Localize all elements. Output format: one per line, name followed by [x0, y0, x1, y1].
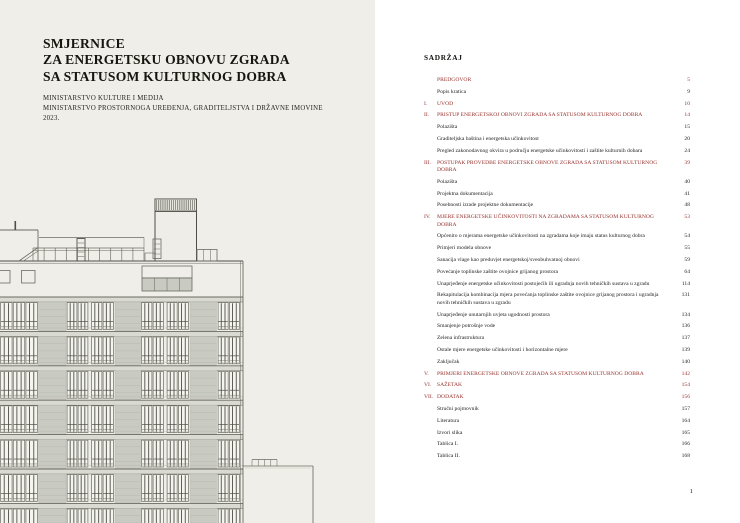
document-spread: SMJERNICE ZA ENERGETSKU OBNOVU ZGRADA SA… [0, 0, 740, 523]
toc-entry-label: PREDGOVOR [437, 77, 662, 84]
toc-entry-page: 48 [684, 202, 690, 209]
toc-roman-numeral: III. [424, 160, 437, 167]
toc-roman-numeral: I. [424, 101, 437, 108]
toc-entry-label: Stručni pojmovnik [437, 406, 662, 413]
toc-row: VII.DODATAK156 [424, 394, 690, 401]
toc-entry-page: 165 [682, 430, 690, 437]
toc-entry-page: 166 [682, 441, 690, 448]
toc-entry-page: 114 [682, 281, 690, 288]
toc-row: Polazišta40 [424, 179, 690, 186]
toc-entry-page: 136 [682, 323, 690, 330]
toc-roman-numeral: VII. [424, 394, 437, 401]
toc-heading: SADRŽAJ [424, 53, 690, 62]
toc-row: Posebnosti izrade projektne dokumentacij… [424, 202, 690, 209]
toc-entry-label: Popis kratica [437, 89, 662, 96]
toc-entry-page: 15 [684, 124, 690, 131]
cover-title: SMJERNICE ZA ENERGETSKU OBNOVU ZGRADA SA… [43, 36, 323, 85]
toc-entry-page: 139 [682, 347, 690, 354]
toc-entry-label: PRIMJERI ENERGETSKE OBNOVE ZGRADA SA STA… [437, 371, 662, 378]
toc-entry-page: 10 [684, 101, 690, 108]
toc-entry-label: PRISTUP ENERGETSKOJ OBNOVI ZGRADA SA STA… [437, 112, 662, 119]
toc-roman-numeral: II. [424, 112, 437, 119]
toc-entry-page: 140 [682, 359, 690, 366]
toc-page: SADRŽAJ PREDGOVOR5Popis kratica9I.UVOD10… [375, 0, 740, 523]
toc-entry-page: 64 [684, 269, 690, 276]
toc-entry-label: Rekapitulacija kombinacija mjera povećan… [437, 292, 662, 307]
toc-entry-label: Pregled zakonodavnog okvira u području e… [437, 148, 662, 155]
toc-entry-page: 156 [682, 394, 690, 401]
toc-entry-page: 41 [684, 191, 690, 198]
cover-title-line: SMJERNICE [43, 36, 323, 52]
toc-entry-page: 9 [687, 89, 690, 96]
cover-subtitle-line: 2023. [43, 114, 323, 124]
toc-entry-page: 14 [684, 112, 690, 119]
toc-entry-page: 55 [684, 245, 690, 252]
toc-entry-label: Ostale mjere energetske učinkovitosti i … [437, 347, 662, 354]
toc-entry-label: Unaprjeđenje unutarnjih uvjeta ugodnosti… [437, 312, 662, 319]
toc-row: IV.MJERE ENERGETSKE UČINKOVITOSTI NA ZGR… [424, 214, 690, 229]
toc-entry-label: Povećanje toplinske zaštite ovojnice gri… [437, 269, 662, 276]
toc-entry-page: 154 [682, 382, 690, 389]
toc-row: Zelena infrastruktura137 [424, 335, 690, 342]
toc-row: Primjeri modela obnove55 [424, 245, 690, 252]
toc-row: Sanacija vlage kao preduvjet energetskoj… [424, 257, 690, 264]
toc-entry-label: Literatura [437, 418, 662, 425]
toc-entry-label: Smanjenje potrošnje vode [437, 323, 662, 330]
toc-row: Popis kratica9 [424, 89, 690, 96]
toc-entry-page: 134 [682, 312, 690, 319]
toc-entry-label: Izvori slika [437, 430, 662, 437]
cover-subtitle: MINISTARSTVO KULTURE I MEDIJA MINISTARST… [43, 94, 323, 123]
toc-entry-label: Tablica II. [437, 453, 662, 460]
cover-subtitle-line: MINISTARSTVO KULTURE I MEDIJA [43, 94, 323, 104]
toc-entry-page: 54 [684, 233, 690, 240]
toc-row: I.UVOD10 [424, 101, 690, 108]
cover-subtitle-line: MINISTARSTVO PROSTORNOGA UREĐENJA, GRADI… [43, 104, 323, 114]
toc-row: Polazišta15 [424, 124, 690, 131]
toc-row: Izvori slika165 [424, 430, 690, 437]
toc-entry-label: Unaprjeđenje energetske učinkovitosti po… [437, 281, 662, 288]
toc-row: Općenito o mjerama energetske učinkovito… [424, 233, 690, 240]
toc-row: VI.SAŽETAK154 [424, 382, 690, 389]
toc-entry-page: 157 [682, 406, 690, 413]
toc-entry-label: UVOD [437, 101, 662, 108]
toc-row: Projektna dokumentacija41 [424, 191, 690, 198]
toc-roman-numeral: V. [424, 371, 437, 378]
toc-row: PREDGOVOR5 [424, 77, 690, 84]
toc-entry-label: Polazišta [437, 124, 662, 131]
toc-row: Tablica I.166 [424, 441, 690, 448]
toc-row: II.PRISTUP ENERGETSKOJ OBNOVI ZGRADA SA … [424, 112, 690, 119]
toc-entry-page: 20 [684, 136, 690, 143]
toc-entry-page: 137 [682, 335, 690, 342]
toc-row: Tablica II.168 [424, 453, 690, 460]
toc-entry-label: MJERE ENERGETSKE UČINKOVITOSTI NA ZGRADA… [437, 214, 662, 229]
toc-entry-page: 131 [682, 292, 690, 299]
toc-entry-page: 39 [684, 160, 690, 167]
toc-row: V.PRIMJERI ENERGETSKE OBNOVE ZGRADA SA S… [424, 371, 690, 378]
toc-row: Stručni pojmovnik157 [424, 406, 690, 413]
toc-row: Zaključak140 [424, 359, 690, 366]
toc-entry-label: Zaključak [437, 359, 662, 366]
toc-entry-label: DODATAK [437, 394, 662, 401]
cover-page: SMJERNICE ZA ENERGETSKU OBNOVU ZGRADA SA… [0, 0, 375, 523]
toc-entry-page: 142 [682, 371, 690, 378]
toc-entry-page: 5 [687, 77, 690, 84]
toc-entry-label: Projektna dokumentacija [437, 191, 662, 198]
toc-rows: PREDGOVOR5Popis kratica9I.UVOD10II.PRIST… [424, 77, 690, 461]
toc-entry-label: Zelena infrastruktura [437, 335, 662, 342]
toc-row: Ostale mjere energetske učinkovitosti i … [424, 347, 690, 354]
toc-entry-page: 164 [682, 418, 690, 425]
toc-roman-numeral: IV. [424, 214, 437, 221]
toc-entry-page: 59 [684, 257, 690, 264]
cover-title-line: ZA ENERGETSKU OBNOVU ZGRADA [43, 52, 323, 68]
toc-row: Literatura164 [424, 418, 690, 425]
toc-entry-label: Graditeljska baština i energetska učinko… [437, 136, 662, 143]
cover-text-block: SMJERNICE ZA ENERGETSKU OBNOVU ZGRADA SA… [43, 36, 323, 124]
toc-entry-label: Posebnosti izrade projektne dokumentacij… [437, 202, 662, 209]
toc-entry-label: Tablica I. [437, 441, 662, 448]
toc-entry-label: Primjeri modela obnove [437, 245, 662, 252]
toc-entry-page: 24 [684, 148, 690, 155]
toc-entry-page: 40 [684, 179, 690, 186]
toc-row: Unaprjeđenje unutarnjih uvjeta ugodnosti… [424, 312, 690, 319]
toc-entry-label: Sanacija vlage kao preduvjet energetskoj… [437, 257, 662, 264]
toc-row: III.POSTUPAK PROVEDBE ENERGETSKE OBNOVE … [424, 160, 690, 175]
toc-entry-page: 168 [682, 453, 690, 460]
toc-entry-label: Općenito o mjerama energetske učinkovito… [437, 233, 662, 240]
toc-entry-label: Polazišta [437, 179, 662, 186]
toc-row: Unaprjeđenje energetske učinkovitosti po… [424, 281, 690, 288]
toc-row: Povećanje toplinske zaštite ovojnice gri… [424, 269, 690, 276]
toc-row: Rekapitulacija kombinacija mjera povećan… [424, 292, 690, 307]
toc-entry-label: SAŽETAK [437, 382, 662, 389]
cover-title-line: SA STATUSOM KULTURNOG DOBRA [43, 69, 323, 85]
toc-entry-label: POSTUPAK PROVEDBE ENERGETSKE OBNOVE ZGRA… [437, 160, 662, 175]
toc-entry-page: 53 [684, 214, 690, 221]
toc-row: Pregled zakonodavnog okvira u području e… [424, 148, 690, 155]
toc-roman-numeral: VI. [424, 382, 437, 389]
page-number: 1 [690, 488, 693, 495]
table-of-contents: SADRŽAJ PREDGOVOR5Popis kratica9I.UVOD10… [424, 53, 690, 465]
toc-row: Graditeljska baština i energetska učinko… [424, 136, 690, 143]
toc-row: Smanjenje potrošnje vode136 [424, 323, 690, 330]
